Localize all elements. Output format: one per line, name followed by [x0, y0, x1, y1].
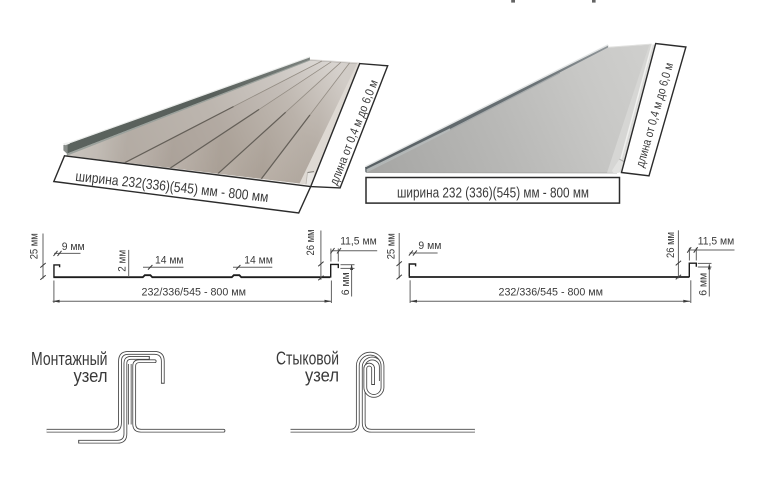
svg-text:11,5 мм: 11,5 мм: [340, 236, 377, 248]
svg-text:14 мм: 14 мм: [244, 255, 272, 267]
svg-text:11,5 мм: 11,5 мм: [698, 236, 735, 248]
svg-text:ширина 232 (336)(545) мм - 800: ширина 232 (336)(545) мм - 800 мм: [397, 186, 589, 202]
svg-text:9 мм: 9 мм: [62, 241, 85, 253]
svg-text:2 мм: 2 мм: [116, 250, 128, 272]
svg-text:26 мм: 26 мм: [665, 232, 677, 258]
svg-text:25 мм: 25 мм: [28, 233, 40, 259]
svg-text:232/336/545 - 800 мм: 232/336/545 - 800 мм: [142, 286, 247, 298]
svg-text:26 мм: 26 мм: [305, 230, 317, 256]
svg-text:узел: узел: [305, 366, 339, 386]
svg-text:232/336/545 - 800 мм: 232/336/545 - 800 мм: [499, 286, 604, 298]
svg-text:25 мм: 25 мм: [385, 233, 397, 259]
svg-text:узел: узел: [74, 366, 108, 386]
svg-text:14 мм: 14 мм: [155, 255, 184, 267]
svg-text:9 мм: 9 мм: [418, 240, 441, 252]
svg-text:6 мм: 6 мм: [697, 273, 709, 296]
svg-text:6 мм: 6 мм: [340, 272, 352, 295]
